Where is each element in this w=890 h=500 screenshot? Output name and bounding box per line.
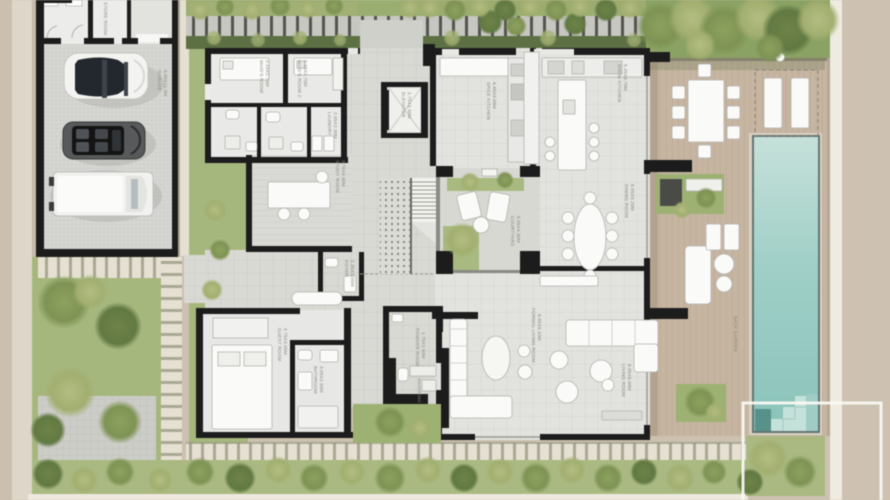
svg-text:3.70X4.90M: 3.70X4.90M	[341, 160, 346, 187]
svg-text:8.05X6.10M: 8.05X6.10M	[537, 314, 542, 341]
svg-text:DINING ROOM: DINING ROOM	[624, 184, 629, 218]
svg-text:2.35X3.05M: 2.35X3.05M	[350, 260, 355, 287]
svg-text:2.05X2.30M: 2.05X2.30M	[333, 112, 338, 139]
svg-text:COURTYARD: COURTYARD	[510, 216, 515, 247]
svg-text:2.15X2.70M: 2.15X2.70M	[303, 60, 308, 87]
svg-text:GUEST ROOM: GUEST ROOM	[277, 328, 282, 361]
svg-text:BACK GARDEN: BACK GARDEN	[733, 316, 738, 352]
svg-text:WARDROBE: WARDROBE	[417, 378, 422, 403]
svg-text:MAID'S ROOM: MAID'S ROOM	[259, 60, 264, 93]
svg-text:BATHROOM: BATHROOM	[313, 366, 318, 394]
svg-text:STUDY ROOM: STUDY ROOM	[335, 160, 340, 193]
svg-text:5.45X3.70M: 5.45X3.70M	[623, 64, 628, 91]
svg-text:FORMAL LIVING ROOM: FORMAL LIVING ROOM	[531, 308, 536, 362]
svg-text:2.15X2.70M: 2.15X2.70M	[265, 60, 270, 87]
svg-text:6.05X6.00M: 6.05X6.00M	[627, 364, 632, 391]
svg-text:5.05X4.30M: 5.05X4.30M	[516, 216, 521, 243]
svg-text:3.05X1.50M: 3.05X1.50M	[319, 366, 324, 393]
svg-text:LAUNDRY: LAUNDRY	[327, 112, 332, 135]
svg-text:1.75X1.60M: 1.75X1.60M	[421, 332, 426, 359]
svg-text:POWDER ROOM: POWDER ROOM	[415, 328, 420, 366]
svg-text:FOYER: FOYER	[344, 260, 349, 277]
svg-text:6.55X5.20M: 6.55X5.20M	[630, 184, 635, 211]
svg-text:SPICE KITCHEN: SPICE KITCHEN	[486, 82, 491, 120]
svg-text:MAID'S ROOM 2: MAID'S ROOM 2	[297, 60, 302, 98]
svg-text:GARAGE: GARAGE	[157, 70, 162, 91]
svg-text:ELEVATOR: ELEVATOR	[401, 92, 406, 118]
svg-text:6.00X11.0M: 6.00X11.0M	[163, 70, 168, 96]
svg-text:SHOW KITCHEN: SHOW KITCHEN	[617, 64, 622, 102]
svg-text:LIVING ROOM: LIVING ROOM	[621, 364, 626, 397]
svg-text:1.75X1.50M: 1.75X1.50M	[407, 92, 412, 119]
svg-text:4.75X3.05M: 4.75X3.05M	[283, 328, 288, 355]
svg-text:4.45X3.05M: 4.45X3.05M	[492, 82, 497, 109]
svg-text:STORE ROOM: STORE ROOM	[103, 2, 108, 35]
